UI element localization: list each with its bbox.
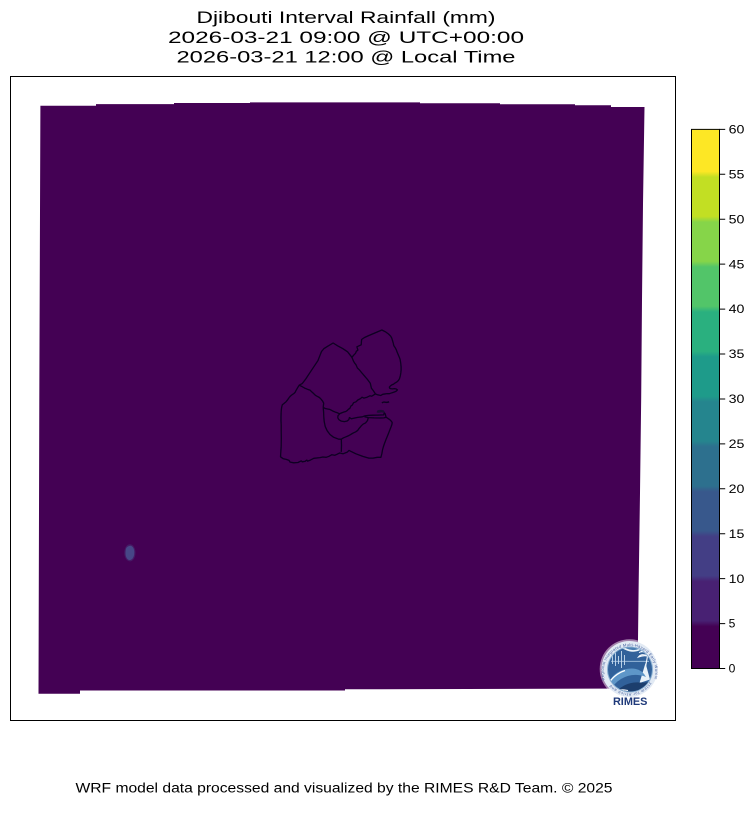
svg-text:20: 20 <box>729 482 745 496</box>
svg-text:50: 50 <box>729 212 745 226</box>
svg-text:0: 0 <box>729 662 736 676</box>
svg-text:Djibouti Interval Rainfall (mm: Djibouti Interval Rainfall (mm) <box>197 9 496 27</box>
svg-text:5: 5 <box>729 617 736 631</box>
svg-text:35: 35 <box>729 347 745 361</box>
svg-text:15: 15 <box>729 527 745 541</box>
svg-text:2026-03-21 12:00 @ Local Time: 2026-03-21 12:00 @ Local Time <box>177 49 516 67</box>
svg-text:60: 60 <box>729 123 745 137</box>
svg-text:45: 45 <box>729 257 745 271</box>
svg-text:WRF model data processed and v: WRF model data processed and visualized … <box>76 781 613 796</box>
svg-text:10: 10 <box>729 572 745 586</box>
svg-text:25: 25 <box>729 437 745 451</box>
svg-text:40: 40 <box>729 302 745 316</box>
svg-text:2026-03-21 09:00 @ UTC+00:00: 2026-03-21 09:00 @ UTC+00:00 <box>168 29 524 47</box>
svg-text:55: 55 <box>729 167 745 181</box>
svg-text:30: 30 <box>729 392 745 406</box>
svg-text:RIMES: RIMES <box>613 696 648 708</box>
